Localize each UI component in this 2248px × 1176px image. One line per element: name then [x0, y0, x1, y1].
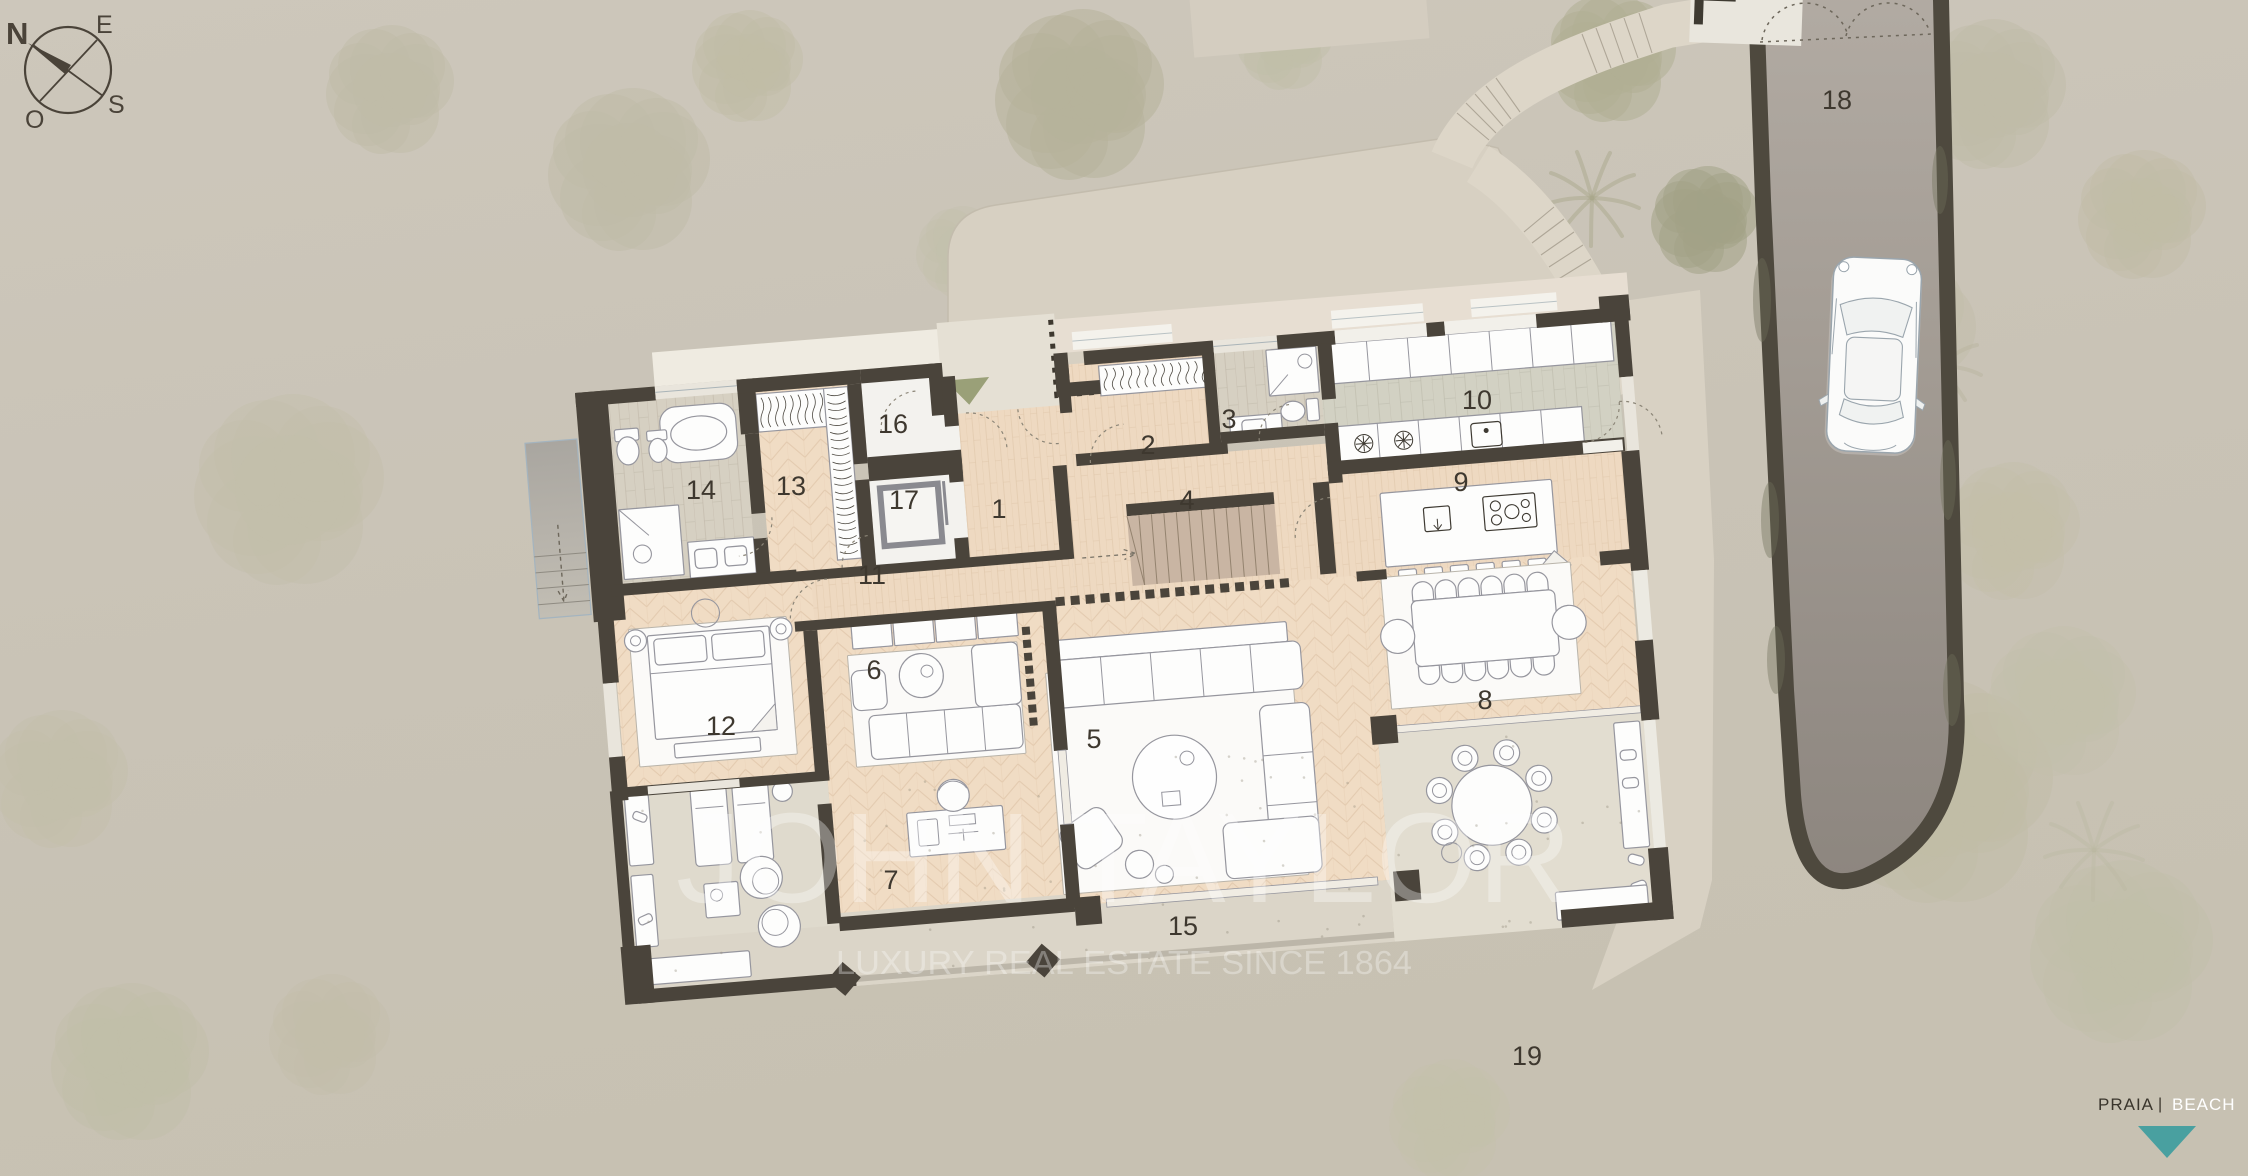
- svg-text:1: 1: [991, 494, 1006, 524]
- svg-text:S: S: [108, 91, 125, 119]
- svg-text:11: 11: [858, 560, 886, 590]
- svg-text:JOHN TAYLOR: JOHN TAYLOR: [676, 787, 1572, 930]
- svg-text:17: 17: [889, 485, 919, 515]
- svg-text:LUXURY REAL ESTATE SINCE 1864: LUXURY REAL ESTATE SINCE 1864: [836, 944, 1412, 981]
- svg-text:10: 10: [1462, 385, 1492, 415]
- svg-text:13: 13: [776, 471, 806, 501]
- svg-text:PRAIA: PRAIA: [2098, 1095, 2154, 1114]
- svg-text:6: 6: [866, 655, 881, 685]
- svg-text:16: 16: [878, 409, 908, 439]
- svg-text:|: |: [2158, 1096, 2162, 1113]
- svg-text:N: N: [6, 16, 28, 51]
- svg-text:5: 5: [1086, 724, 1101, 754]
- svg-text:9: 9: [1453, 467, 1468, 497]
- svg-text:BEACH: BEACH: [2172, 1095, 2236, 1114]
- svg-text:4: 4: [1179, 485, 1194, 515]
- svg-text:14: 14: [686, 475, 716, 505]
- svg-text:19: 19: [1512, 1041, 1542, 1071]
- svg-text:12: 12: [706, 711, 736, 741]
- svg-text:18: 18: [1822, 85, 1852, 115]
- svg-text:2: 2: [1140, 430, 1155, 460]
- svg-text:8: 8: [1477, 685, 1492, 715]
- svg-text:E: E: [96, 11, 113, 39]
- svg-text:3: 3: [1221, 404, 1236, 434]
- svg-text:O: O: [25, 106, 44, 134]
